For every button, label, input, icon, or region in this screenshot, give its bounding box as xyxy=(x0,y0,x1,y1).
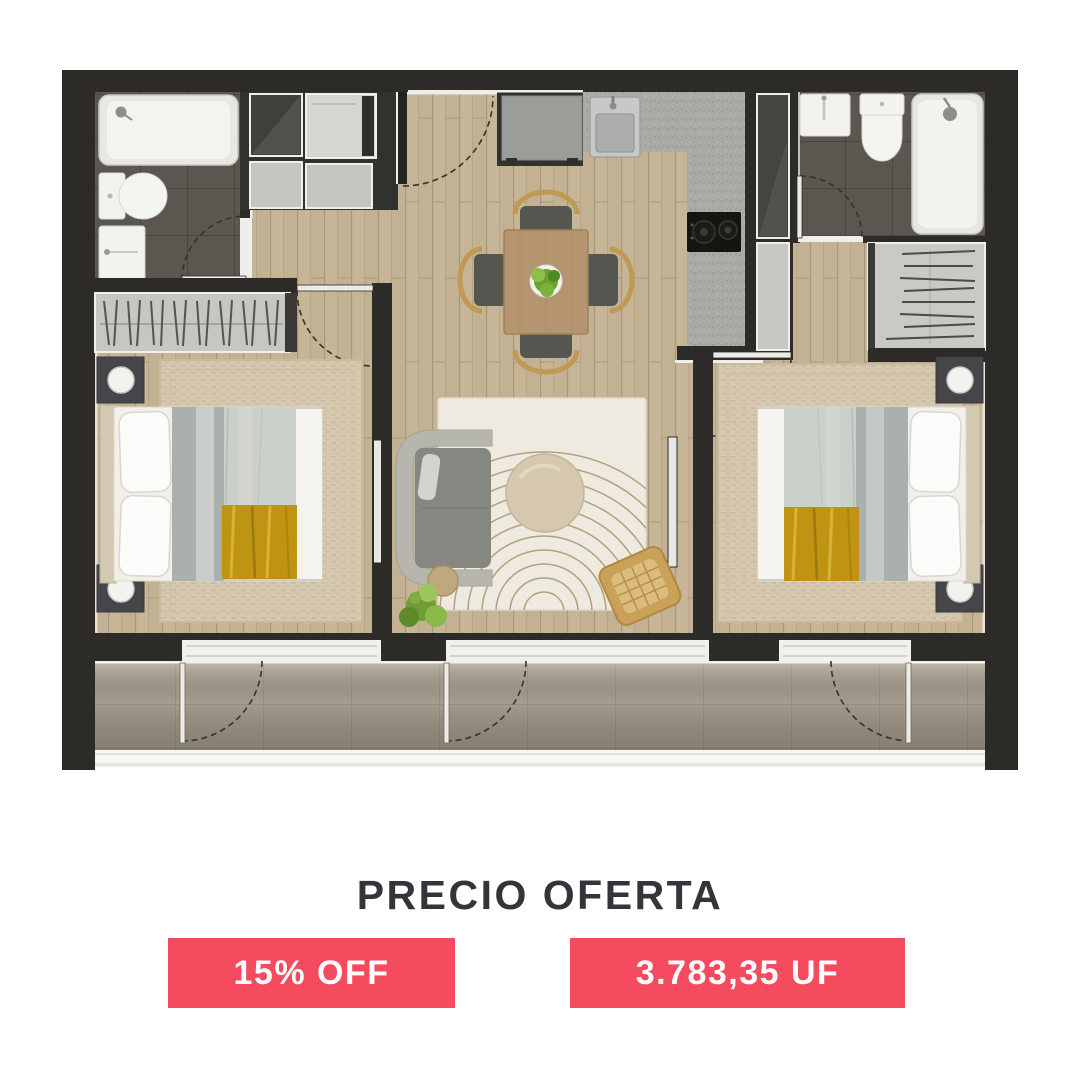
coffee-pouf xyxy=(506,454,584,532)
toilet-1 xyxy=(99,173,167,219)
pillow xyxy=(119,411,172,493)
fridge xyxy=(497,90,583,166)
price-badge[interactable]: 3.783,35 UF xyxy=(570,938,905,1008)
bed-2 xyxy=(758,405,980,583)
sink-2 xyxy=(800,94,850,136)
balcony-window-sills xyxy=(182,640,911,662)
gold-throw-2 xyxy=(784,507,859,581)
floor-plan xyxy=(0,0,1080,840)
gold-throw-1 xyxy=(222,505,297,579)
nightstand-1a xyxy=(97,357,144,403)
pillow xyxy=(119,495,172,577)
pillow xyxy=(909,495,962,577)
offer-title: PRECIO OFERTA xyxy=(0,872,1080,919)
bathroom-2-door-leaf xyxy=(797,176,802,238)
bedroom-2 xyxy=(718,357,983,622)
balcony-railing xyxy=(95,750,985,767)
washer-unit xyxy=(306,94,376,158)
entry-cabinets xyxy=(240,92,398,210)
mirror-panel-1 xyxy=(374,440,382,563)
offer-card: PRECIO OFERTA 15% OFF 3.783,35 UF xyxy=(0,0,1080,1080)
hall-wardrobe-column xyxy=(753,92,793,360)
mirror-panel-2 xyxy=(668,437,677,567)
bedroom-2-door-leaf xyxy=(713,352,791,358)
discount-badge[interactable]: 15% OFF xyxy=(168,938,455,1008)
sofa xyxy=(396,430,492,586)
dining-table xyxy=(504,230,588,334)
toilet-2 xyxy=(860,94,904,161)
balcony xyxy=(95,633,985,767)
cooktop xyxy=(687,212,741,252)
bed-1 xyxy=(100,405,322,583)
nightstand-2a xyxy=(936,357,983,403)
sink-1 xyxy=(99,226,145,280)
bedroom-1-door-leaf xyxy=(297,285,373,291)
bathtub-1 xyxy=(99,95,238,165)
closet-2 xyxy=(868,243,985,362)
cabinet-low-2 xyxy=(306,164,372,208)
pillow xyxy=(909,411,962,493)
bathroom-1 xyxy=(95,92,253,281)
cabinet-dark xyxy=(250,94,302,156)
kitchen-sink xyxy=(590,96,640,157)
bathroom-2 xyxy=(792,92,985,243)
wardrobe-1 xyxy=(95,293,297,352)
cabinet-low-1 xyxy=(250,162,302,208)
bathtub-2 xyxy=(912,94,983,234)
